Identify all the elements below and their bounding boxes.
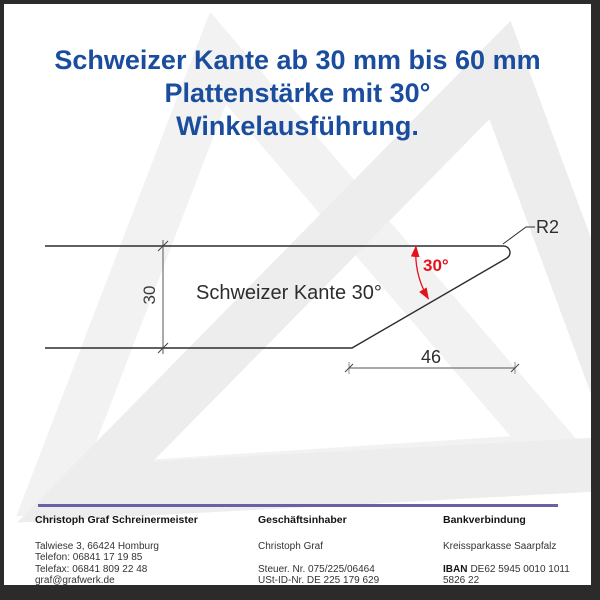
company-name-heading: Christoph Graf Schreinermeister — [35, 515, 198, 527]
footer-owner-column: Geschäftsinhaber Christoph Graf Steuer. … — [258, 515, 379, 585]
spacer — [443, 552, 591, 564]
footer-separator-rule — [38, 504, 558, 507]
page-title: Schweizer Kante ab 30 mm bis 60 mm Platt… — [4, 44, 591, 143]
radius-label: R2 — [536, 217, 559, 238]
footer-bank-column: Bankverbindung Kreissparkasse Saarpfalz … — [443, 515, 591, 585]
bank-iban-line: IBANDE62 5945 0010 1011 5826 22 — [443, 564, 591, 586]
screenshot-root: { "title": { "line1": "Schweizer Kante a… — [0, 0, 600, 600]
bank-name: Kreissparkasse Saarpfalz — [443, 541, 591, 553]
profile-name-label: Schweizer Kante 30° — [196, 282, 382, 305]
page-title-line-3: Winkelausführung. — [4, 110, 591, 143]
page-title-line-2: Plattenstärke mit 30° — [4, 77, 591, 110]
thickness-dim-label: 30 — [132, 277, 168, 313]
company-phone: Telefon: 06841 17 19 85 — [35, 552, 198, 564]
owner-tax-number: Steuer. Nr. 075/225/06464 — [258, 564, 379, 576]
angle-dim-label: 30° — [423, 256, 449, 276]
document-page: Schweizer Kante ab 30 mm bis 60 mm Platt… — [4, 4, 591, 585]
bevel-width-dim-label: 46 — [407, 347, 455, 368]
company-fax: Telefax: 06841 809 22 48 — [35, 564, 198, 576]
page-title-line-1: Schweizer Kante ab 30 mm bis 60 mm — [4, 44, 591, 77]
company-email: graf@grafwerk.de — [35, 575, 198, 585]
radius-leader-line — [503, 227, 535, 244]
bank-heading: Bankverbindung — [443, 515, 591, 527]
iban-label: IBAN — [443, 564, 467, 575]
spacer — [258, 552, 379, 564]
owner-heading: Geschäftsinhaber — [258, 515, 379, 527]
company-address: Talwiese 3, 66424 Homburg — [35, 541, 198, 553]
footer-company-column: Christoph Graf Schreinermeister Talwiese… — [35, 515, 198, 585]
owner-name: Christoph Graf — [258, 541, 379, 553]
owner-vat-id: USt-ID-Nr. DE 225 179 629 — [258, 575, 379, 585]
